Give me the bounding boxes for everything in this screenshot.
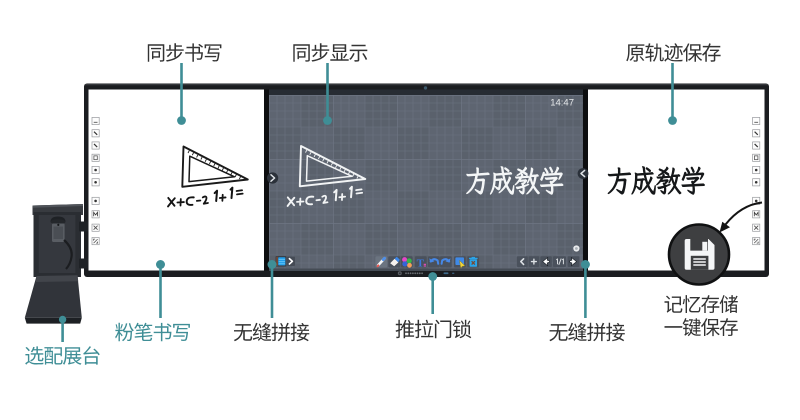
svg-text:T: T bbox=[417, 257, 425, 269]
svg-text:14:47: 14:47 bbox=[550, 98, 574, 109]
